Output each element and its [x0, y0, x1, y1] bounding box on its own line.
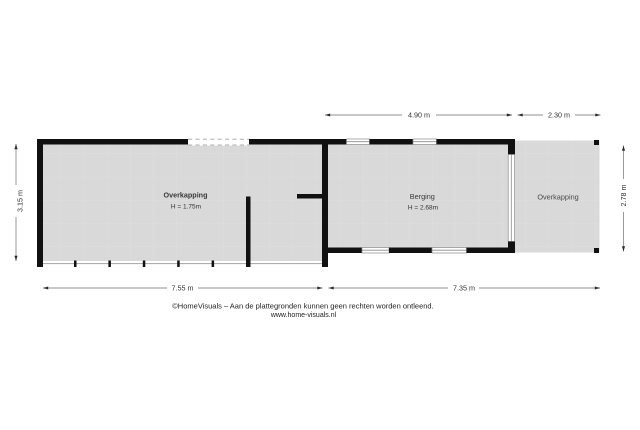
svg-text:7.35 m: 7.35 m	[453, 283, 475, 292]
svg-text:3.15 m: 3.15 m	[16, 190, 25, 212]
svg-text:Overkapping: Overkapping	[537, 192, 578, 201]
svg-text:H = 2.68m: H = 2.68m	[408, 205, 438, 212]
svg-text:7.55 m: 7.55 m	[172, 283, 194, 292]
svg-text:H = 1.75m: H = 1.75m	[171, 204, 201, 211]
svg-text:www.home-visuals.nl: www.home-visuals.nl	[270, 312, 337, 319]
svg-text:©HomeVisuals – Aan de plattegr: ©HomeVisuals – Aan de plattegronden kunn…	[172, 301, 433, 310]
svg-text:2.78 m: 2.78 m	[619, 185, 628, 207]
svg-text:Overkapping: Overkapping	[164, 191, 208, 200]
svg-text:Berging: Berging	[410, 192, 435, 201]
svg-text:2.30 m: 2.30 m	[548, 111, 570, 120]
svg-text:4.90 m: 4.90 m	[408, 111, 430, 120]
